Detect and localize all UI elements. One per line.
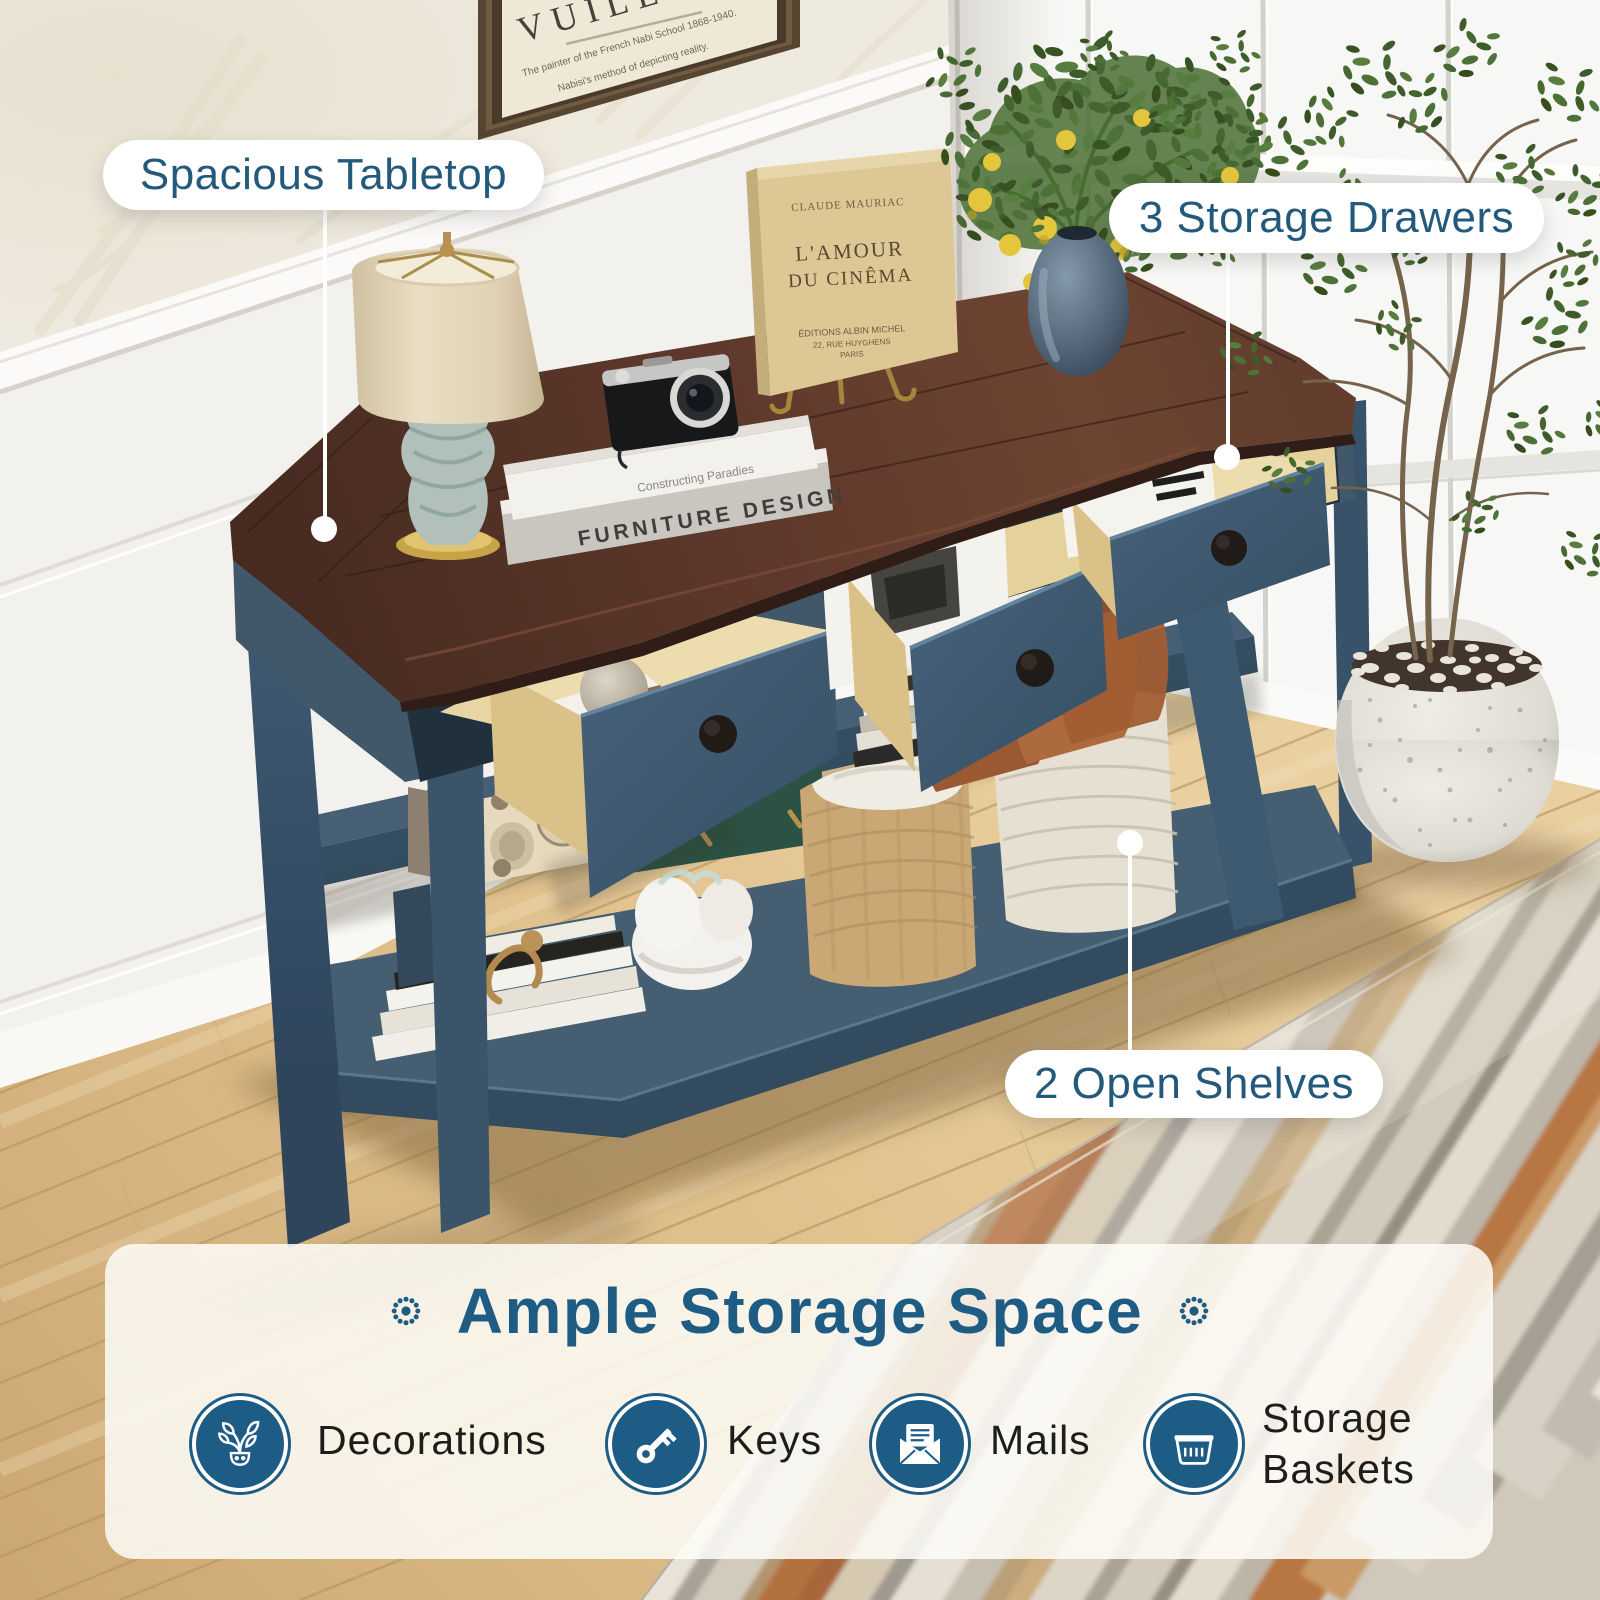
svg-text:PARIS: PARIS [840, 349, 864, 359]
